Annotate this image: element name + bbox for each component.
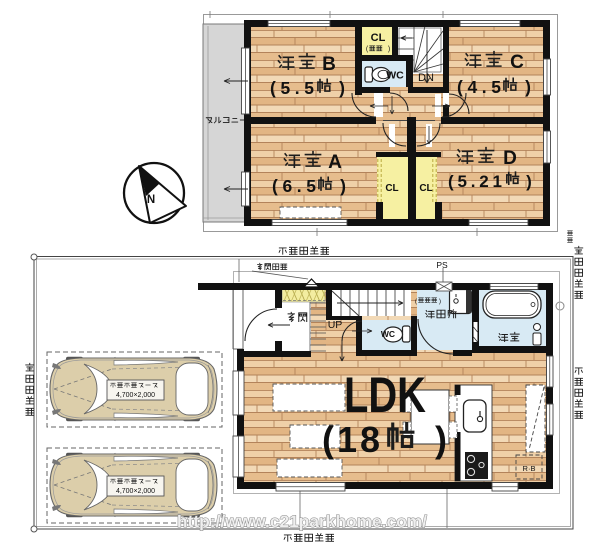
svg-text:): ) [339,78,345,98]
svg-text:N: N [147,194,155,206]
svg-text:): ) [526,172,532,191]
svg-text:WC: WC [381,329,395,339]
svg-text:(18: (18 [322,419,380,460]
svg-text:): ) [439,298,441,305]
svg-text:): ) [435,419,447,460]
svg-text:UP: UP [328,319,343,331]
svg-text:C: C [510,52,524,73]
svg-text:): ) [525,77,531,97]
svg-text:R·B: R·B [523,464,536,473]
svg-text:CL: CL [419,183,432,194]
svg-text:LDK: LDK [344,367,426,423]
svg-text:DN: DN [418,72,434,84]
svg-text:CL: CL [371,32,386,44]
svg-text:A: A [328,152,342,173]
svg-text:): ) [388,46,390,53]
svg-text:D: D [503,148,517,169]
svg-text:CL: CL [385,183,398,194]
svg-text:4,700×2,000: 4,700×2,000 [116,392,155,399]
svg-text:): ) [340,176,346,196]
svg-text:WC: WC [386,70,404,82]
svg-text:B: B [322,54,336,75]
svg-text:http://www.c21parkhome.com/: http://www.c21parkhome.com/ [177,513,427,531]
svg-text:4,700×2,000: 4,700×2,000 [116,488,155,495]
svg-text:PS: PS [436,260,448,270]
